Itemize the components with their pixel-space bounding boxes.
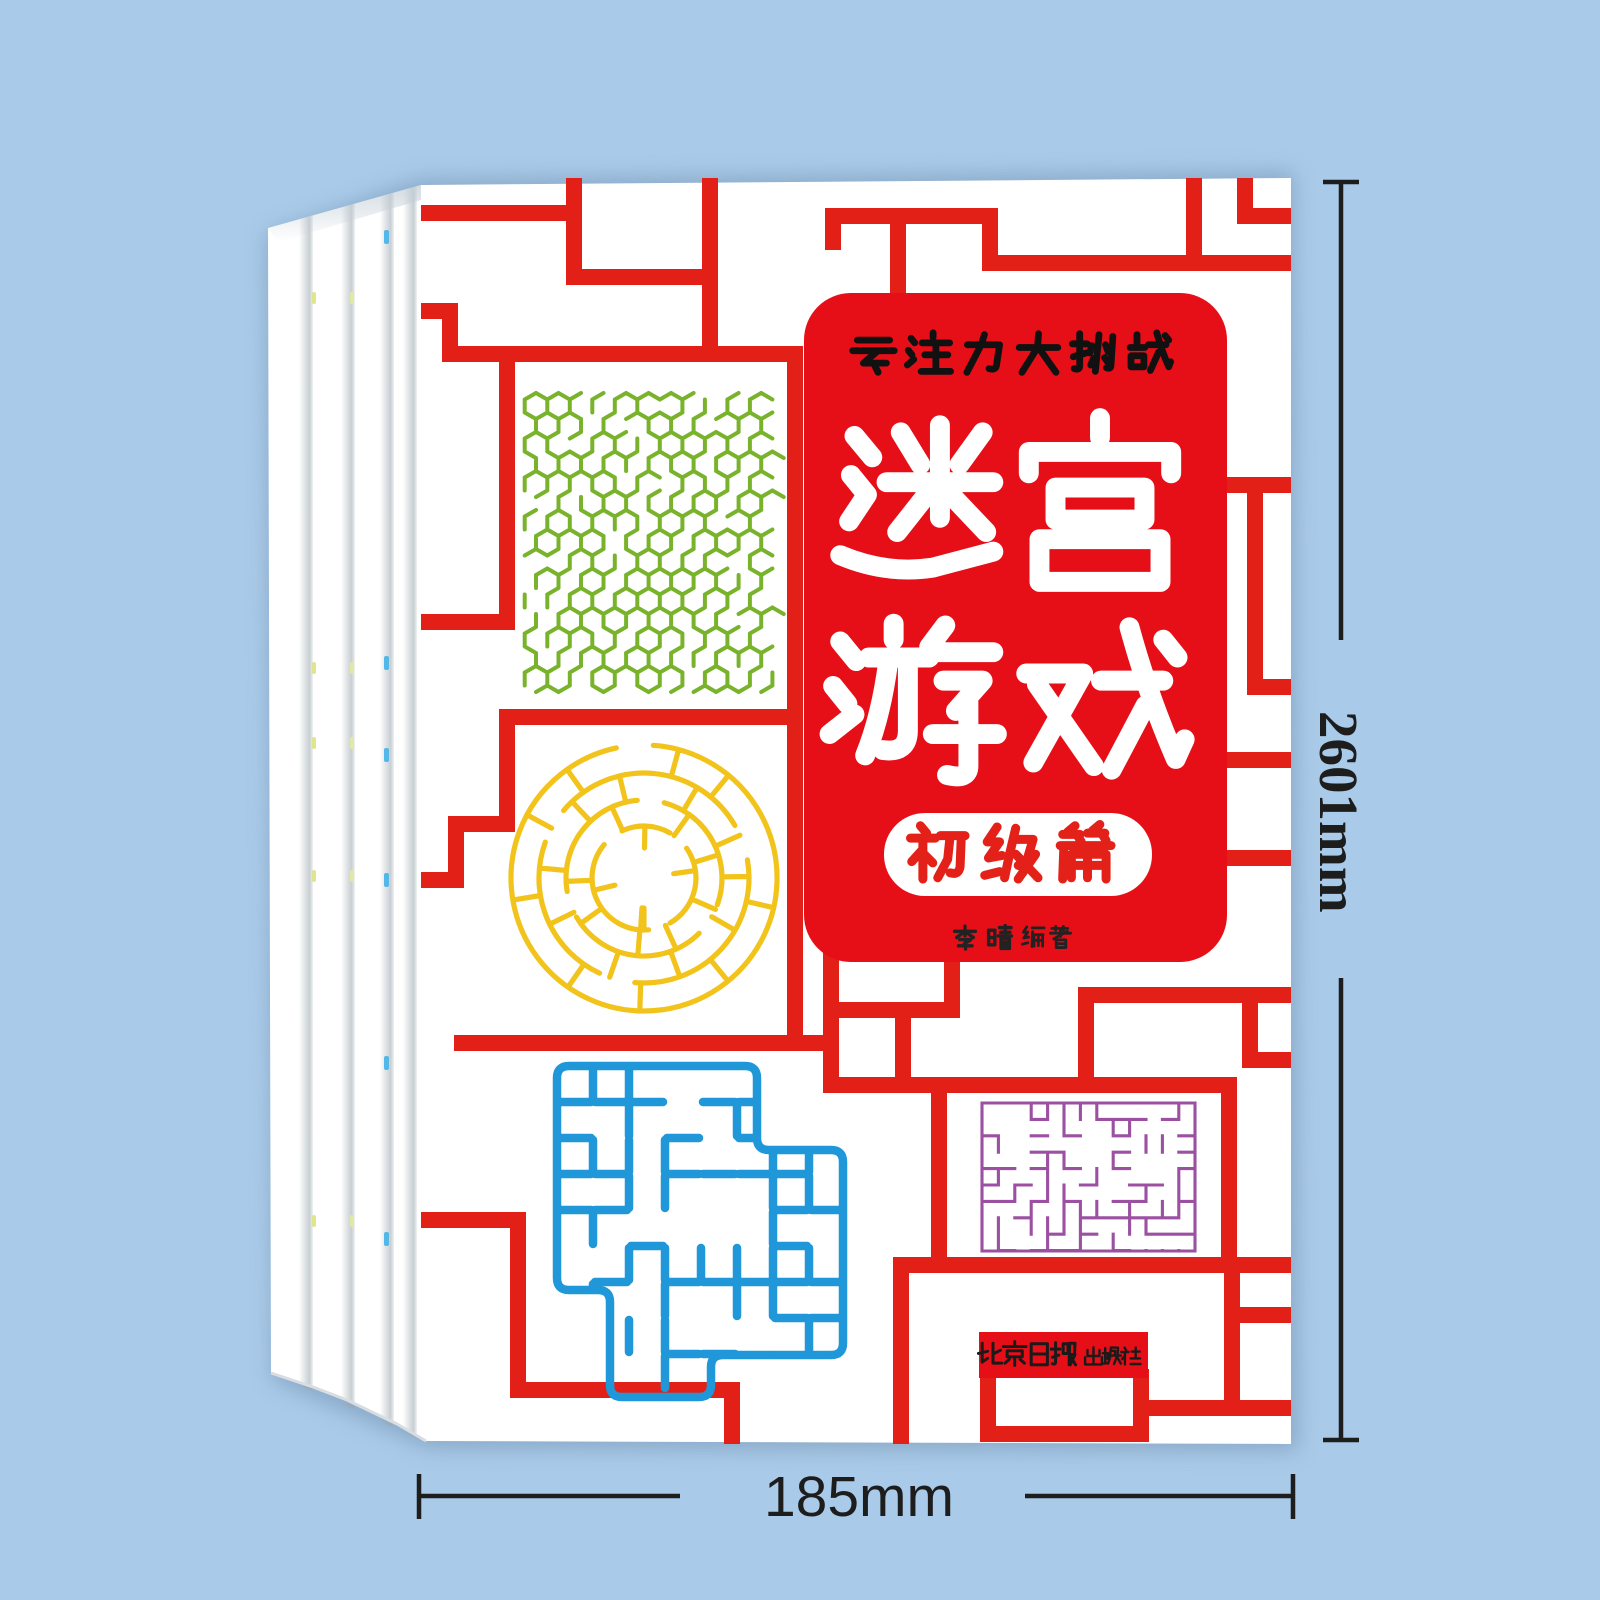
svg-text:2601mm: 2601mm: [1308, 711, 1369, 913]
svg-text:185mm: 185mm: [764, 1465, 954, 1529]
